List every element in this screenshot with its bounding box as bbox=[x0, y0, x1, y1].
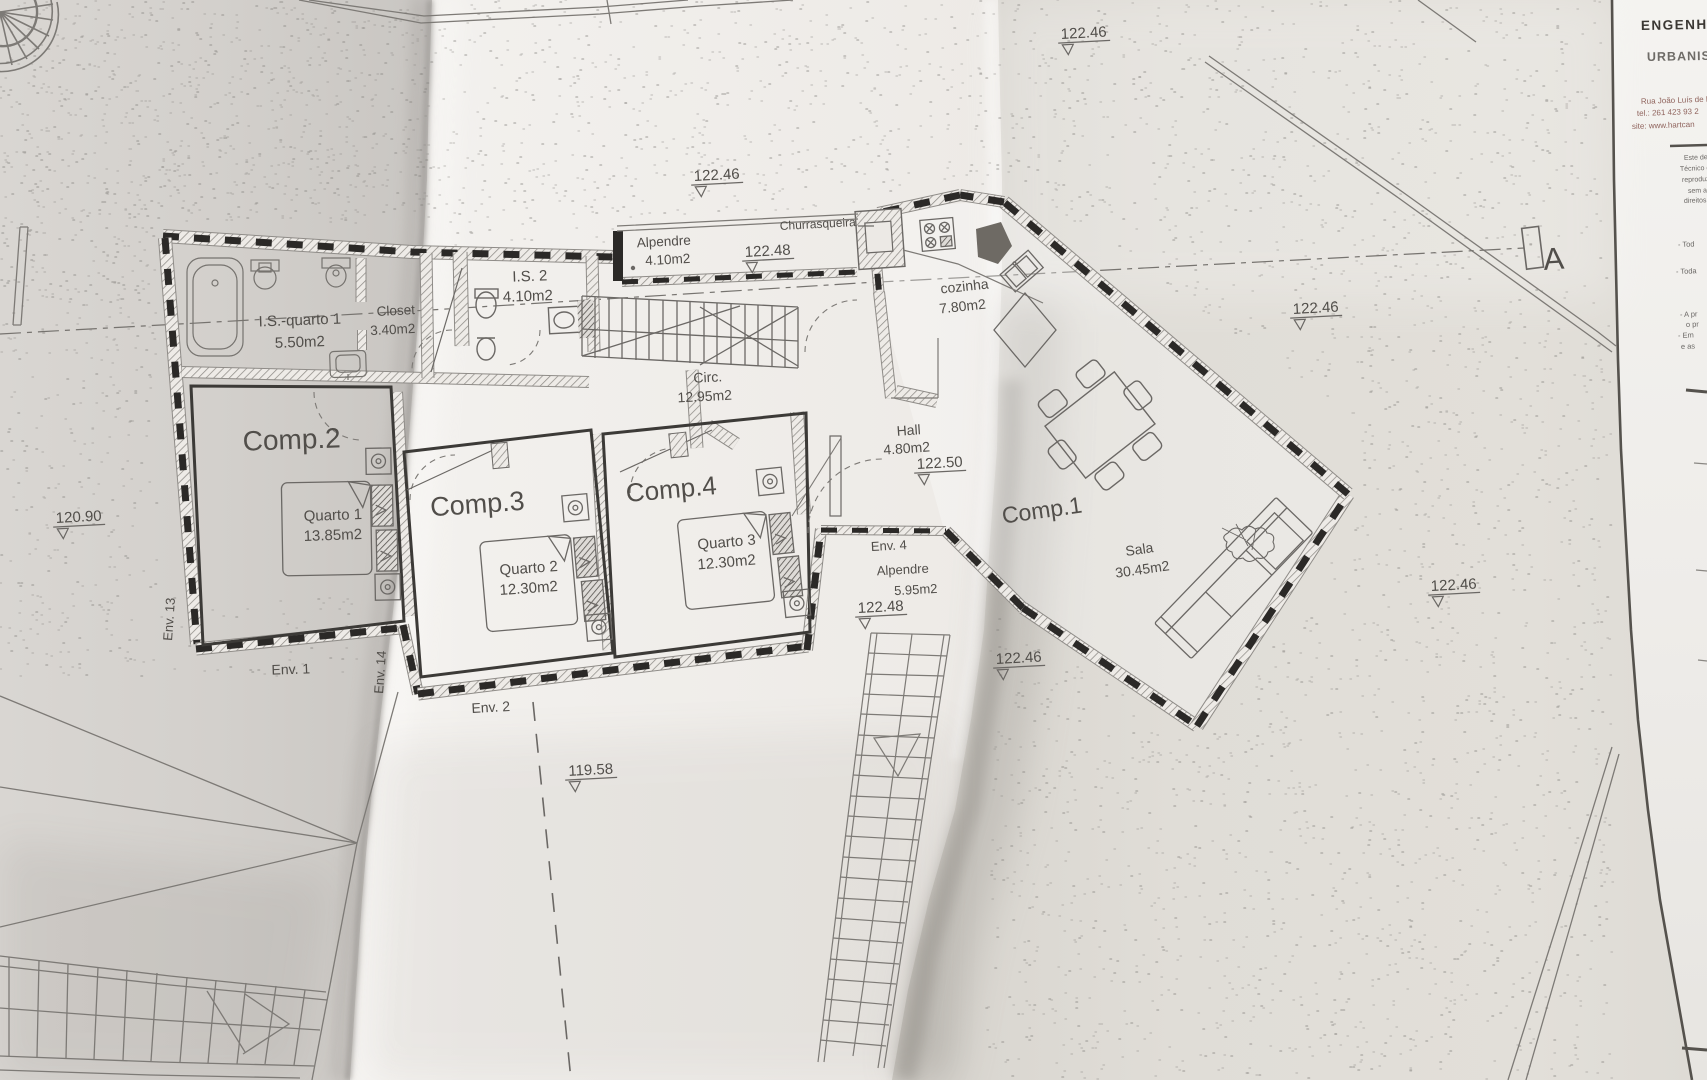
svg-text:direitos: direitos bbox=[1684, 197, 1707, 205]
svg-text:119.58: 119.58 bbox=[568, 761, 614, 780]
svg-text:I.S.-quarto 1: I.S.-quarto 1 bbox=[258, 311, 341, 331]
svg-text:Env. 14: Env. 14 bbox=[371, 650, 389, 694]
svg-text:- Toda: - Toda bbox=[1676, 266, 1698, 276]
svg-text:URBANISMO: URBANISMO bbox=[1647, 48, 1707, 64]
svg-text:I.S. 2: I.S. 2 bbox=[512, 267, 548, 285]
svg-text:A: A bbox=[1542, 241, 1565, 277]
svg-text:Env. 2: Env. 2 bbox=[471, 698, 511, 716]
svg-text:e as: e as bbox=[1681, 342, 1696, 351]
svg-text:Env. 13: Env. 13 bbox=[160, 597, 178, 641]
svg-text:- A pr: - A pr bbox=[1680, 309, 1698, 319]
svg-text:122.46: 122.46 bbox=[693, 166, 740, 185]
svg-text:Comp.2: Comp.2 bbox=[242, 422, 341, 456]
svg-text:122.46: 122.46 bbox=[995, 649, 1042, 668]
svg-text:4.10m2: 4.10m2 bbox=[645, 251, 691, 268]
svg-text:Alpendre: Alpendre bbox=[876, 561, 929, 579]
svg-text:o pr: o pr bbox=[1686, 320, 1700, 329]
svg-text:5.50m2: 5.50m2 bbox=[275, 333, 326, 352]
svg-text:Alpendre: Alpendre bbox=[636, 233, 691, 251]
svg-text:Env. 4: Env. 4 bbox=[870, 537, 907, 554]
svg-text:Env. 1: Env. 1 bbox=[271, 660, 310, 677]
svg-text:122.46: 122.46 bbox=[1292, 299, 1339, 318]
svg-text:Closet: Closet bbox=[376, 302, 415, 319]
svg-text:Este de: Este de bbox=[1684, 154, 1707, 162]
svg-text:122.50: 122.50 bbox=[916, 454, 963, 473]
svg-text:122.48: 122.48 bbox=[857, 598, 904, 617]
svg-text:122.48: 122.48 bbox=[744, 242, 791, 261]
svg-text:Hall: Hall bbox=[896, 421, 921, 439]
svg-text:12.95m2: 12.95m2 bbox=[677, 387, 732, 406]
svg-text:122.46: 122.46 bbox=[1060, 24, 1107, 43]
svg-text:13.85m2: 13.85m2 bbox=[303, 526, 362, 545]
svg-text:120.90: 120.90 bbox=[55, 508, 102, 527]
svg-text:ENGENHARIA: ENGENHARIA bbox=[1641, 16, 1707, 33]
svg-text:Técnico d: Técnico d bbox=[1680, 165, 1707, 173]
svg-text:sem a: sem a bbox=[1688, 187, 1707, 195]
svg-text:- Em: - Em bbox=[1678, 330, 1694, 340]
svg-text:- Tod: - Tod bbox=[1678, 239, 1695, 249]
svg-text:122.46: 122.46 bbox=[1430, 576, 1477, 595]
svg-text:5.95m2: 5.95m2 bbox=[894, 581, 938, 598]
svg-text:reproduz: reproduz bbox=[1682, 176, 1707, 184]
svg-text:4.10m2: 4.10m2 bbox=[503, 287, 554, 306]
svg-text:3.40m2: 3.40m2 bbox=[370, 321, 416, 338]
svg-text:Quarto 1: Quarto 1 bbox=[303, 506, 362, 525]
svg-text:Circ.: Circ. bbox=[693, 368, 723, 385]
